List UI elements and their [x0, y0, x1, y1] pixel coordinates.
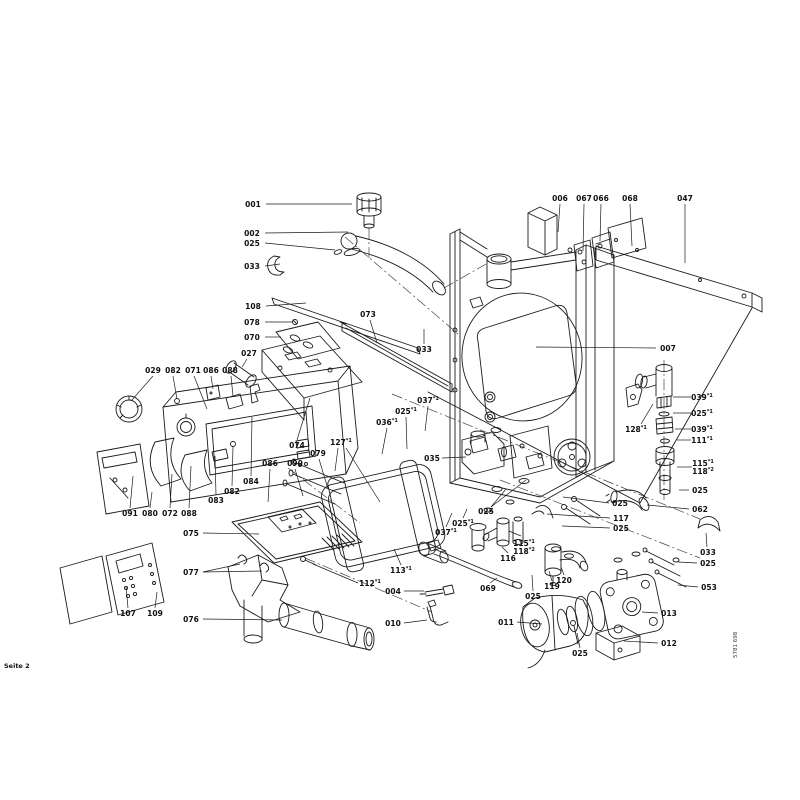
exploded-parts-diagram: 0010020250331080780700270730330060670660…: [0, 0, 800, 800]
part-label: 025: [692, 486, 708, 495]
part-label: 066: [593, 194, 609, 203]
part-label: 086: [203, 366, 219, 375]
part-label: 109: [147, 609, 163, 618]
part-label: 090: [287, 459, 303, 468]
part-label: 086: [262, 459, 278, 468]
part-label: 088: [222, 366, 238, 375]
part-label: 025: [572, 649, 588, 658]
part-label: 025: [244, 239, 260, 248]
part-label: 002: [244, 229, 260, 238]
part-label: 067: [576, 194, 592, 203]
part-label: 011: [498, 618, 514, 627]
part-label: 068: [622, 194, 638, 203]
part-label: 076: [183, 615, 199, 624]
part-label: 062: [692, 505, 708, 514]
part-label: 120: [556, 576, 572, 585]
part-label: 033: [700, 548, 716, 557]
part-label: 082: [224, 487, 240, 496]
part-label: 082: [165, 366, 181, 375]
part-label: 029: [145, 366, 161, 375]
part-label: 025: [612, 499, 628, 508]
part-label: 012: [661, 639, 677, 648]
part-label: 071: [185, 366, 201, 375]
part-label: 077: [183, 568, 199, 577]
part-label: 091: [122, 509, 138, 518]
part-label: 053: [701, 583, 717, 592]
page: 0010020250331080780700270730330060670660…: [0, 0, 800, 800]
part-label: 027: [241, 349, 257, 358]
part-label: 025: [613, 524, 629, 533]
part-label: 072: [162, 509, 178, 518]
part-label: 075: [183, 529, 199, 538]
part-label: 079: [310, 449, 326, 458]
part-label: 004: [385, 587, 401, 596]
part-label: 084: [243, 477, 259, 486]
part-label: 080: [142, 509, 158, 518]
part-label: 073: [360, 310, 376, 319]
part-label: 006: [552, 194, 568, 203]
part-label: 117: [613, 514, 629, 523]
part-label: 088: [181, 509, 197, 518]
part-label: 035: [424, 454, 440, 463]
part-label: 013: [661, 609, 677, 618]
part-label: 025: [525, 592, 541, 601]
part-label: 108: [245, 302, 261, 311]
part-label: 025: [700, 559, 716, 568]
part-label: 033: [244, 262, 260, 271]
part-label: 001: [245, 200, 261, 209]
part-label: 047: [677, 194, 693, 203]
part-label: 083: [208, 496, 224, 505]
page-number: Seite 2: [4, 662, 30, 670]
part-label: 010: [385, 619, 401, 628]
document-code-vertical: 5781 698: [733, 631, 739, 658]
part-label: 107: [120, 609, 136, 618]
part-label: 069: [480, 584, 496, 593]
part-label: 070: [244, 333, 260, 342]
part-label: 007: [660, 344, 676, 353]
part-label: 025: [478, 507, 494, 516]
part-label: 074: [289, 441, 305, 450]
part-label: 033: [416, 345, 432, 354]
part-label: 078: [244, 318, 260, 327]
